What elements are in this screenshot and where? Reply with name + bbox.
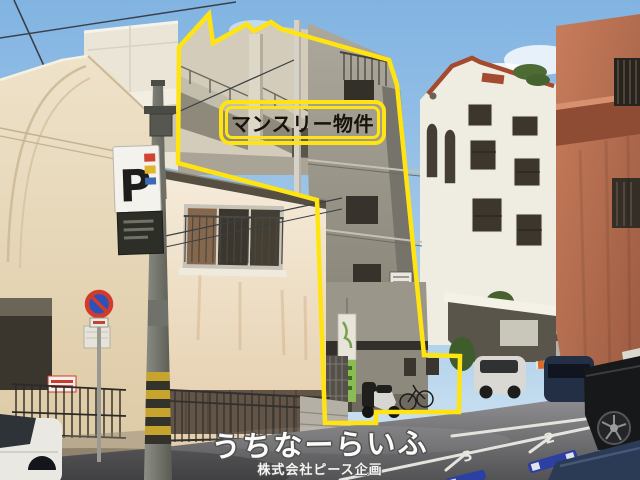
property-label: マンスリー物件 <box>231 108 374 137</box>
photo-scene: 3 2 <box>0 0 640 480</box>
sign-board <box>117 211 163 255</box>
arch-window <box>444 129 456 184</box>
arch-window <box>426 123 438 178</box>
parked-white-car <box>474 356 526 399</box>
property-label-inner-frame: マンスリー物件 <box>225 106 380 139</box>
property-label-frame: マンスリー物件 <box>219 100 386 145</box>
wall-plaque <box>404 358 416 376</box>
white-car <box>0 414 62 480</box>
listing-photo: 3 2 <box>0 0 640 480</box>
left-building <box>0 56 152 464</box>
wall-plaque <box>426 358 439 375</box>
pole-meter-box <box>148 300 168 326</box>
window <box>346 196 378 224</box>
